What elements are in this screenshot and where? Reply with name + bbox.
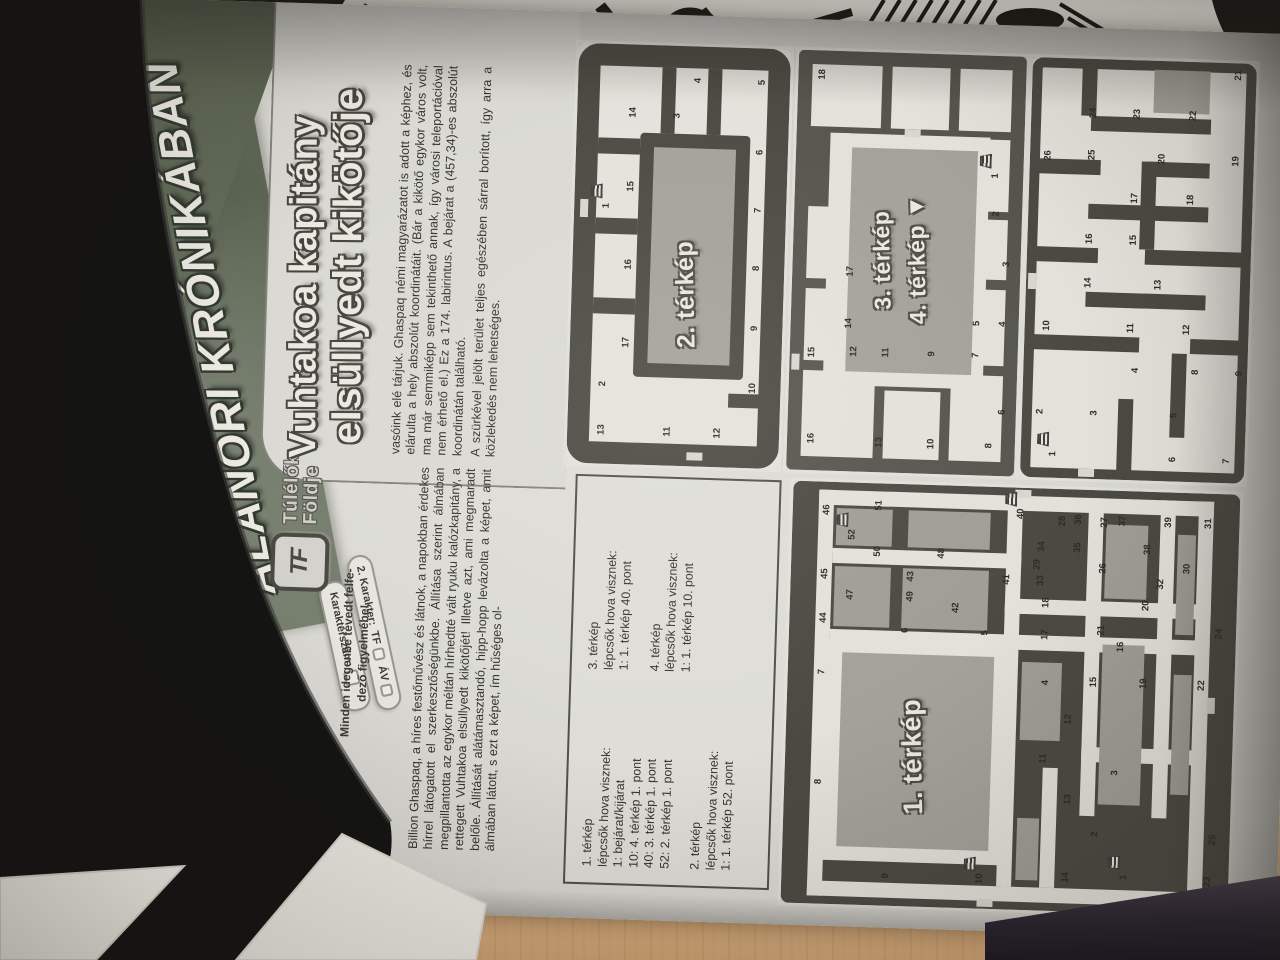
- map-point-number: 3: [1109, 770, 1120, 776]
- map-point-number: 19: [1138, 678, 1149, 689]
- map-point-number: 11: [880, 347, 891, 357]
- map-point-number: 32: [1155, 579, 1166, 590]
- map-point-number: 13: [1062, 794, 1073, 805]
- map-point-number: 9: [926, 351, 937, 357]
- map-point-number: 21: [1233, 70, 1244, 81]
- magazine-page: KUPONOK AZ ALANORI KRÓNIKÁBAN 1. Karakte…: [114, 0, 1280, 940]
- map-point-number: 35: [1072, 542, 1083, 553]
- map-point-number: 9: [880, 873, 891, 879]
- map-point-number: 4: [1040, 680, 1051, 686]
- map-point-number: 21: [1095, 625, 1106, 636]
- serial-box: [163, 637, 180, 654]
- map-point-number: 17: [620, 337, 631, 348]
- legend-column-2: 3. térképlépcsők hova visznek:1: 1. térk…: [586, 482, 770, 674]
- map-point-number: 29: [1032, 559, 1043, 570]
- article-column-2: vasóink elé tárjuk. Ghaspaq némi magyará…: [388, 64, 514, 457]
- tf-checkbox: [194, 617, 208, 631]
- map-point-number: 47: [844, 589, 855, 600]
- map-point-number: 25: [1207, 835, 1218, 846]
- map-point-number: 15: [625, 181, 636, 192]
- title-line1: Vuhtakoa kapitány: [282, 8, 327, 458]
- av-label: ÁV: [196, 635, 210, 652]
- coupon-label: 3. Karakter:: [182, 534, 203, 596]
- map-point-number: 18: [1040, 597, 1051, 608]
- map-3-label-line2: 4. térkép ▼: [897, 154, 936, 365]
- map-point-number: 8: [983, 443, 994, 449]
- map-point-number: 18: [817, 69, 828, 80]
- map-point-number: 14: [1060, 872, 1071, 883]
- logo-name: Túlélők Földje: [281, 454, 323, 525]
- map-point-number: 17: [845, 266, 856, 277]
- map-point-number: 27: [1099, 517, 1110, 528]
- map-point-number: 39: [1163, 517, 1174, 528]
- map-point-number: 8: [1190, 369, 1201, 375]
- map-point-number: 36: [1073, 514, 1084, 525]
- map-point-number: 12: [1181, 324, 1192, 335]
- map-point-number: 23: [1132, 109, 1143, 120]
- map-point-number: 4: [997, 321, 1008, 327]
- map-point-number: 52: [846, 529, 857, 540]
- map-point-number: 3: [1088, 410, 1099, 416]
- map-point-number: 2: [1089, 831, 1100, 837]
- map-point-number: 26: [1097, 563, 1108, 574]
- map-4-maze: [1020, 57, 1257, 484]
- map-point-number: 10: [974, 873, 985, 884]
- map-point-number: 1: [601, 203, 612, 209]
- map-point-number: 7: [1221, 458, 1232, 464]
- map-point-number: 37: [1117, 516, 1128, 527]
- map-point-number: 20: [1156, 154, 1167, 165]
- map-3-label: 3. térkép 4. térkép ▼: [862, 154, 935, 365]
- map-point-number: 48: [936, 548, 947, 559]
- map-point-number: 13: [873, 437, 884, 448]
- map-4: 1234567891011121314151617181920212223242…: [1020, 57, 1257, 484]
- map-3: 3. térkép 4. térkép ▼ 123456789101112131…: [786, 50, 1027, 477]
- slogan: Minden idegenbe tévedt felfe- dező figye…: [337, 563, 374, 744]
- map-point-number: 7: [816, 669, 827, 675]
- tf-label: TF: [191, 600, 205, 615]
- logo-name-line2: Földje: [301, 454, 323, 525]
- map-point-number: 5: [971, 321, 982, 327]
- map-point-number: 44: [818, 612, 829, 623]
- map-point-number: 1: [990, 173, 1001, 179]
- map-point-number: 12: [848, 346, 859, 357]
- map-point-number: 16: [805, 433, 816, 444]
- map-point-number: 15: [806, 347, 817, 358]
- article-column-1: Billion Ghaspaq, a híres festőművész és …: [406, 467, 510, 852]
- map-point-number: 24: [1088, 107, 1099, 118]
- map-point-number: 24: [1213, 629, 1224, 640]
- stairs-legend-box: 1. térképlépcsők hova visznek:1: bejárat…: [563, 474, 782, 890]
- map-point-number: 13: [596, 424, 607, 435]
- map-point-number: 1: [1118, 874, 1129, 880]
- map-point-number: 5: [1168, 413, 1179, 419]
- map-1-maze: [780, 481, 1240, 917]
- map-point-number: 10: [1041, 320, 1052, 331]
- photo-scene: KUPONOK AZ ALANORI KRÓNIKÁBAN 1. Karakte…: [0, 0, 1280, 960]
- map-point-number: 5: [979, 630, 990, 636]
- map-point-number: 11: [1037, 753, 1048, 763]
- map-point-number: 51: [873, 500, 884, 511]
- map-point-number: 1: [1047, 451, 1058, 457]
- map-point-number: 38: [1142, 544, 1153, 555]
- map-point-number: 16: [1084, 233, 1095, 244]
- down-arrow-icon: ▼: [902, 195, 928, 219]
- title-line2: elsüllyedt kikötője: [325, 8, 372, 444]
- map-point-number: 16: [623, 259, 634, 270]
- map-point-number: 22: [1188, 111, 1199, 122]
- map-point-number: 22: [1196, 680, 1207, 691]
- map-point-number: 2: [1034, 409, 1045, 415]
- tf-logo-icon: TF: [270, 532, 330, 592]
- map-3-label-line1: 3. térkép: [862, 155, 901, 366]
- map-point-number: 11: [661, 426, 672, 436]
- av-label: ÁV: [376, 665, 391, 682]
- map-point-number: 14: [1082, 277, 1093, 288]
- map-point-number: 43: [905, 571, 916, 582]
- map-point-number: 2: [597, 381, 608, 387]
- map-point-number: 12: [1063, 714, 1074, 725]
- article-paragraph: vasóink elé tárjuk. Ghaspaq némi magyará…: [388, 64, 477, 456]
- map-point-number: 20: [1140, 600, 1151, 611]
- map-point-number: 5: [757, 80, 768, 86]
- map-point-number: 15: [1088, 677, 1099, 688]
- tf-monogram: TF: [285, 549, 314, 575]
- map-point-number: 23: [1202, 876, 1213, 887]
- map-point-number: 14: [627, 107, 638, 118]
- map-point-number: 19: [1230, 156, 1241, 167]
- map-point-number: 46: [821, 504, 832, 515]
- av-checkbox: [216, 793, 230, 807]
- map-point-number: 25: [1086, 149, 1097, 160]
- map-point-number: 6: [1167, 457, 1178, 463]
- map-point-number: 42: [950, 602, 961, 613]
- map-point-number: 3: [1001, 261, 1012, 267]
- map-point-number: 4: [693, 78, 704, 84]
- map-point-number: 7: [970, 353, 981, 359]
- map-point-number: 31: [1203, 518, 1214, 529]
- map-point-number: 9: [1234, 371, 1245, 377]
- map-point-number: 30: [1181, 564, 1192, 575]
- map-point-number: 11: [1125, 323, 1136, 333]
- map-point-number: 12: [711, 428, 722, 439]
- map-2: 2. térkép 1321171615141112109876543: [566, 43, 791, 469]
- map-point-number: 8: [751, 266, 762, 272]
- map-point-number: 16: [1115, 642, 1126, 653]
- page-content: KUPONOK AZ ALANORI KRÓNIKÁBAN 1. Karakte…: [114, 0, 1280, 940]
- map-point-number: 6: [754, 150, 765, 156]
- map-point-number: 14: [843, 318, 854, 329]
- map-point-number: 8: [813, 779, 824, 785]
- map-point-number: 41: [1001, 574, 1012, 585]
- tf-logo-row: TF Túlélők Földje: [270, 453, 332, 592]
- map-point-number: 10: [925, 438, 936, 449]
- map-point-number: 40: [1015, 508, 1026, 519]
- map-point-number: 18: [1185, 195, 1196, 206]
- map-point-number: 9: [749, 326, 760, 332]
- map-1-label: 1. térkép: [896, 699, 929, 815]
- map-point-number: 2: [991, 211, 1002, 217]
- map-point-number: 17: [1129, 193, 1140, 204]
- map-point-number: 3: [671, 113, 682, 119]
- legend-column-1: 1. térképlépcsők hova visznek:1: bejárat…: [579, 679, 763, 871]
- article-title: Vuhtakoa kapitány elsüllyedt kikötője: [282, 8, 372, 458]
- map-point-number: 6: [899, 627, 910, 633]
- map-point-number: 6: [996, 409, 1007, 415]
- map-point-number: 7: [753, 208, 764, 214]
- map-point-number: 33: [1035, 575, 1046, 586]
- map-point-number: 49: [904, 591, 915, 602]
- map-point-number: 26: [1042, 150, 1053, 161]
- map-point-number: 15: [1128, 235, 1139, 246]
- av-checkbox: [380, 683, 394, 697]
- map-point-number: 10: [747, 383, 758, 394]
- tf-checkbox: [372, 647, 386, 661]
- coupon-label: 1. Karakter:: [195, 674, 218, 736]
- map-point-number: 34: [1036, 541, 1047, 552]
- map-point-number: 4: [1130, 368, 1141, 374]
- av-checkbox: [199, 654, 213, 668]
- map-1: 1. térkép 123456789101112131415161718192…: [780, 481, 1240, 917]
- serial-label: Karakterszám:: [153, 558, 176, 635]
- map-point-number: 50: [872, 546, 883, 557]
- map-point-number: 45: [819, 568, 830, 579]
- map-point-number: 13: [1152, 280, 1163, 291]
- map-point-number: 17: [1039, 629, 1050, 640]
- map-2-label: 2. térkép: [670, 241, 701, 349]
- map-point-number: 28: [1057, 516, 1068, 527]
